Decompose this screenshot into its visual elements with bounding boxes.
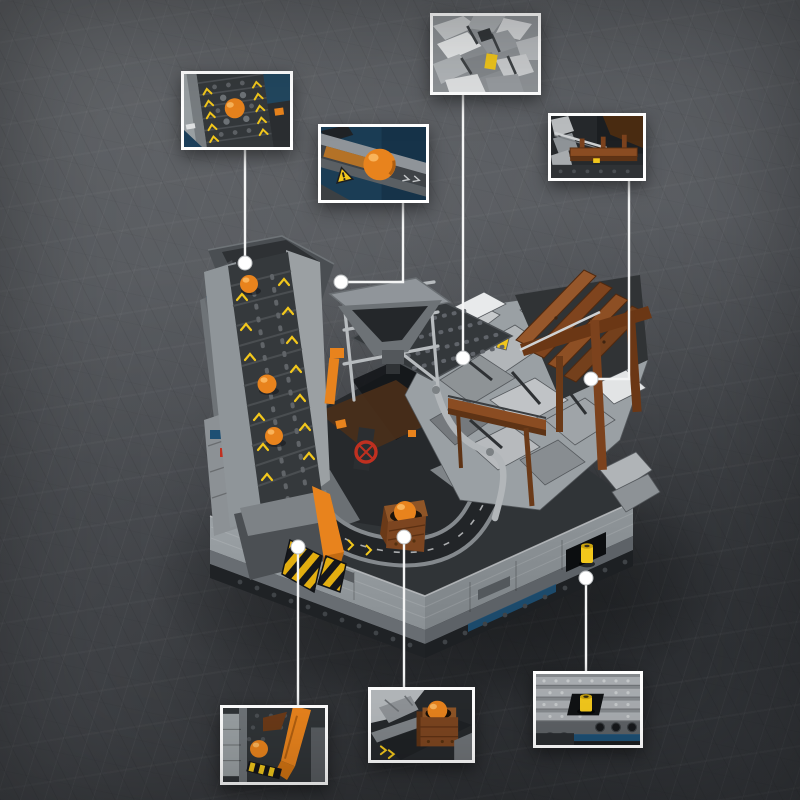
corner-mechanism-image <box>223 708 325 782</box>
callout-wooden-trough-closeup <box>548 113 646 181</box>
conveyor-closeup-image <box>184 74 290 147</box>
callout-crank-handle-closeup <box>533 671 643 748</box>
callout-rock-rubble-closeup <box>430 13 541 95</box>
rubble-closeup-image <box>433 16 538 92</box>
callout-conveyor-belt-closeup <box>181 71 293 150</box>
product-photo-stage <box>0 0 800 800</box>
chute-closeup-image <box>321 127 426 200</box>
callout-corner-mechanism-closeup <box>220 705 328 785</box>
crank-closeup-image <box>536 674 640 745</box>
callout-ball-chute-closeup <box>318 124 429 203</box>
callout-ball-crate-closeup <box>368 687 475 763</box>
crate-closeup-image <box>371 690 472 760</box>
trough-closeup-image <box>551 116 643 178</box>
diorama-model-illustration <box>0 0 800 800</box>
